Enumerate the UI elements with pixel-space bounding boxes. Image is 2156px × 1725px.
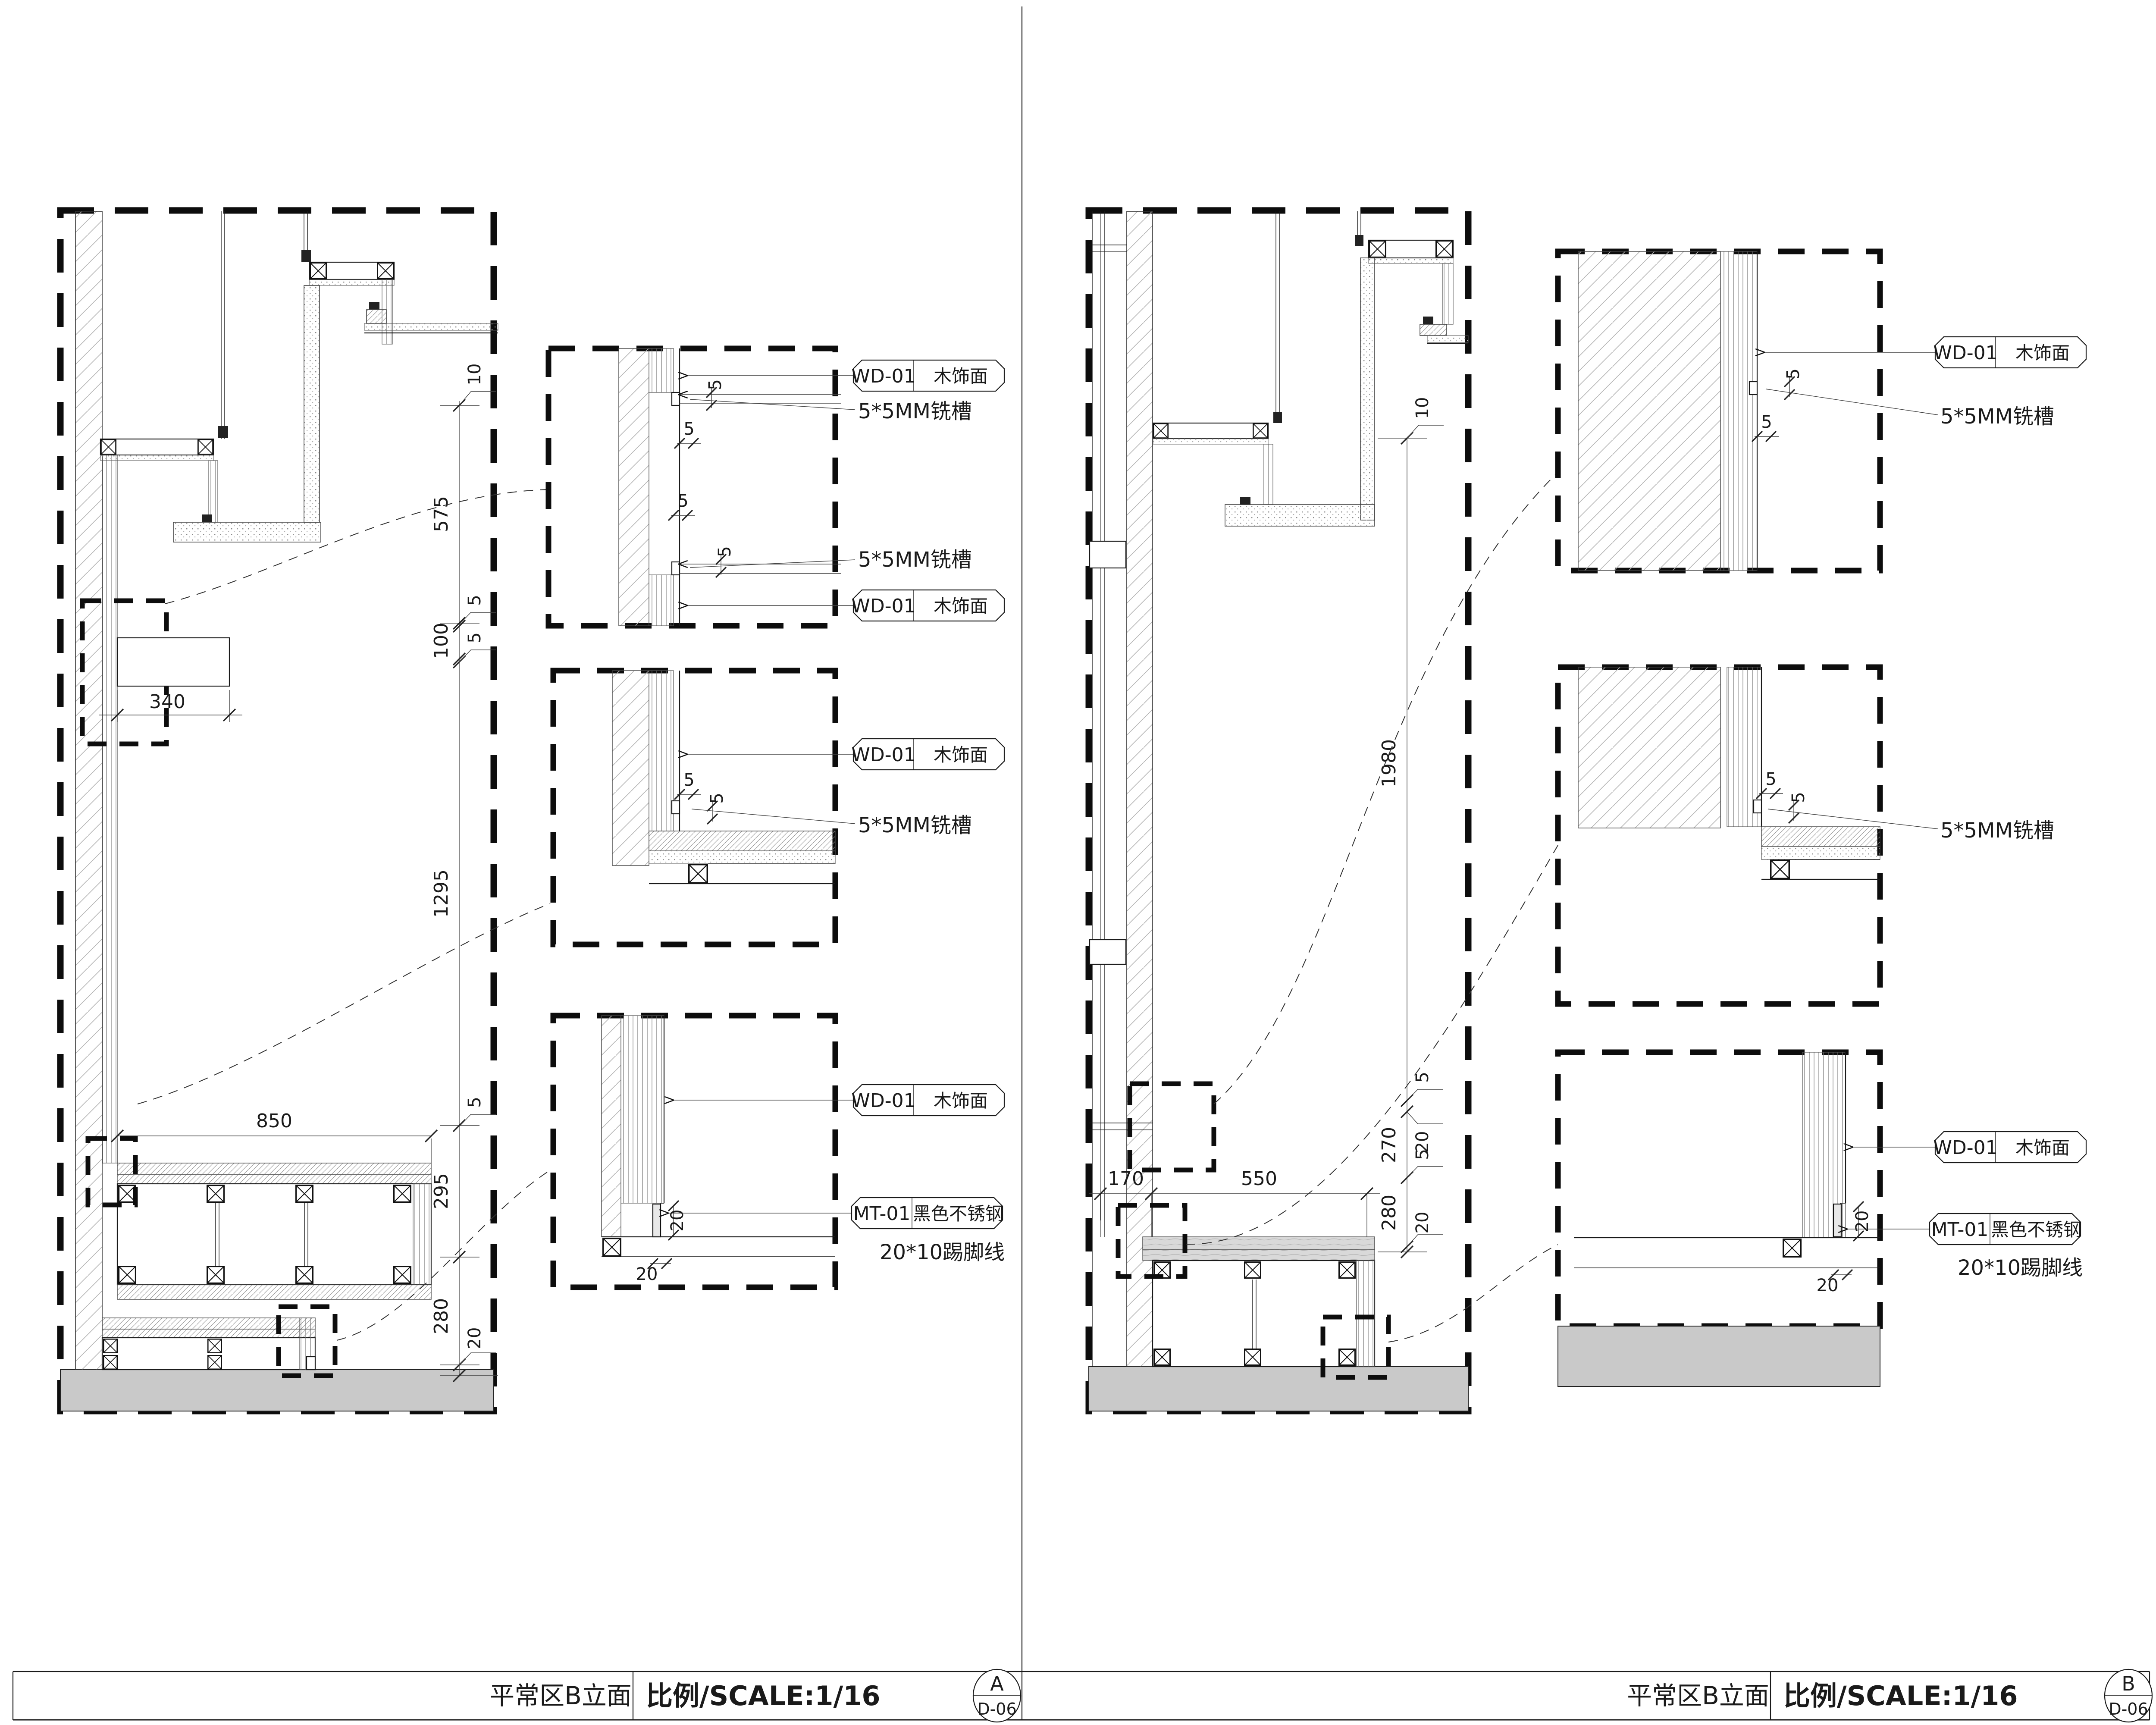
dim-label: 5 — [705, 379, 725, 390]
dim-label: 20 — [636, 1264, 658, 1284]
ceiling-slab-left — [1153, 423, 1268, 439]
svg-text:黑色不锈钢: 黑色不锈钢 — [1991, 1219, 2081, 1240]
left-bench — [117, 1163, 431, 1299]
groove-note: 5*5MM铣槽 — [1940, 405, 2054, 429]
wood-blocking — [367, 310, 386, 323]
ceiling-slab-low — [1225, 505, 1375, 526]
dim-label: 5 — [683, 770, 694, 790]
ceiling-step-board — [208, 461, 218, 522]
svg-text:WD-01: WD-01 — [851, 365, 915, 387]
scale-label: 比例/SCALE:1/16 — [1783, 1680, 2018, 1712]
material-tag-wd01: WD-01 木饰面 — [851, 1085, 1004, 1116]
hanger-clip — [202, 514, 212, 522]
panel-joint-block — [1090, 940, 1126, 964]
dim-label: 5 — [465, 632, 485, 643]
skirting-profile — [1833, 1204, 1841, 1237]
left-plinth-cabinet — [102, 1318, 315, 1370]
bench-top-section — [649, 831, 835, 851]
panel-joint-block — [1090, 541, 1126, 568]
material-tag-wd01: WD-01 木饰面 — [1933, 1132, 2086, 1163]
bench-frame — [117, 1184, 431, 1285]
dim-label: 20 — [1817, 1276, 1839, 1295]
ceiling-step-board — [1360, 258, 1375, 520]
bench-top-board — [117, 1174, 431, 1184]
right-floor-slab — [1089, 1367, 1468, 1411]
ref-sheet: D-06 — [977, 1700, 1016, 1719]
dim-label: 5 — [683, 419, 694, 439]
milling-groove — [1754, 800, 1761, 813]
ceiling-step-board — [1442, 263, 1453, 324]
dim-label: 20 — [465, 1327, 485, 1349]
milling-groove — [672, 392, 680, 405]
groove-note: 5*5MM铣槽 — [858, 399, 972, 423]
skirting-recess — [307, 1357, 315, 1370]
dim-label: 100 — [430, 623, 452, 659]
bench-top-board — [117, 1163, 431, 1174]
milling-groove — [672, 562, 680, 575]
groove-note: 5*5MM铣槽 — [858, 548, 972, 572]
cad-sheet: 340 850 — [0, 0, 2156, 1725]
material-tag-wd01: WD-01 木饰面 — [851, 590, 1004, 621]
skirting-note: 20*10踢脚线 — [880, 1240, 1005, 1264]
svg-text:WD-01: WD-01 — [851, 1090, 915, 1112]
framing-block — [198, 439, 213, 454]
scale-label: 比例/SCALE:1/16 — [646, 1680, 881, 1712]
milling-groove — [672, 801, 680, 814]
dim-label: 550 — [1241, 1168, 1277, 1190]
material-tag-wd01: WD-01 木饰面 — [851, 739, 1004, 770]
dim-label: 5 — [715, 546, 735, 557]
ceiling-step-board — [304, 285, 320, 522]
dim-label: 340 — [149, 691, 185, 713]
svg-text:木饰面: 木饰面 — [934, 366, 988, 387]
dim-label: 5 — [465, 595, 485, 605]
dim-label: 5 — [707, 793, 727, 803]
material-tag-wd01: WD-01 木饰面 — [1933, 337, 2086, 368]
bench-side-board — [1357, 1261, 1375, 1367]
svg-text:MT-01: MT-01 — [1931, 1219, 1989, 1241]
dim-label: 5 — [1789, 792, 1808, 803]
svg-text:木饰面: 木饰面 — [934, 744, 988, 765]
groove-note: 5*5MM铣槽 — [1940, 819, 2054, 843]
dim-label: 5 — [1413, 1149, 1432, 1160]
dim-label: 850 — [256, 1110, 292, 1132]
framing-block — [378, 263, 394, 279]
material-tag-wd01: WD-01 木饰面 — [851, 360, 1004, 391]
svg-text:MT-01: MT-01 — [853, 1203, 911, 1225]
hanger-clip — [301, 250, 311, 262]
bench-top-board — [1143, 1250, 1375, 1261]
groove-note: 5*5MM铣槽 — [858, 813, 972, 837]
skirting-profile — [653, 1204, 661, 1237]
ref-letter: A — [990, 1672, 1004, 1695]
svg-text:WD-01: WD-01 — [1933, 1137, 1997, 1159]
left-wood-panel-strip — [103, 455, 117, 1163]
left-floor-slab — [60, 1370, 494, 1411]
milling-groove — [1749, 382, 1757, 395]
plinth-top-board — [102, 1329, 315, 1338]
hanger-clip — [218, 426, 228, 438]
dim-label: 280 — [430, 1298, 452, 1334]
dim-label: 20 — [667, 1210, 687, 1232]
ceiling-lining — [100, 455, 213, 461]
dim-label: 170 — [1108, 1168, 1144, 1190]
framing-block — [310, 263, 326, 279]
svg-text:WD-01: WD-01 — [851, 744, 915, 766]
skirting-note: 20*10踢脚线 — [1958, 1256, 2083, 1280]
dim-label: 5 — [1783, 368, 1803, 379]
ceiling-step-board — [1264, 444, 1273, 505]
elevation-drawing-svg: 340 850 — [0, 0, 2156, 1725]
right-wall-hatch — [1127, 211, 1153, 1367]
view-title: 平常区B立面 — [1627, 1681, 1769, 1710]
bench-top-section — [1761, 827, 1880, 847]
ceiling-slab-low — [173, 522, 321, 542]
plinth-top-board — [102, 1318, 315, 1329]
framing-block — [101, 439, 116, 454]
detail-reference-bubble: B D-06 — [2105, 1669, 2152, 1722]
svg-text:木饰面: 木饰面 — [2015, 1137, 2070, 1158]
ref-letter: B — [2122, 1672, 2135, 1695]
dim-label: 5 — [465, 1097, 485, 1107]
material-tag-mt01: MT-01 黑色不锈钢 — [1930, 1214, 2081, 1245]
dim-label: 270 — [1378, 1127, 1400, 1163]
dim-label: 5 — [677, 491, 688, 511]
ceiling-slab-left — [100, 439, 213, 455]
bench-bottom-board — [117, 1285, 431, 1299]
svg-text:WD-01: WD-01 — [1933, 342, 1997, 364]
svg-text:木饰面: 木饰面 — [2015, 342, 2070, 364]
svg-text:黑色不锈钢: 黑色不锈钢 — [913, 1203, 1003, 1224]
detail-floor-slab — [1558, 1326, 1880, 1386]
bench-side-board — [413, 1184, 431, 1285]
dim-label: 1295 — [430, 869, 452, 918]
ceiling-lining — [310, 279, 394, 285]
hanger-clip — [1423, 317, 1433, 324]
hanger-clip — [1355, 235, 1363, 246]
wood-blocking — [1420, 324, 1447, 336]
ceiling-slab-right — [364, 323, 498, 330]
hanger-clip — [1273, 412, 1282, 423]
bench-top-board — [1143, 1237, 1375, 1250]
svg-text:木饰面: 木饰面 — [934, 1090, 988, 1111]
wall-shelf — [117, 638, 229, 686]
material-tag-mt01: MT-01 黑色不锈钢 — [852, 1198, 1003, 1229]
dim-label: 295 — [430, 1173, 452, 1209]
dim-label: 20 — [1413, 1212, 1432, 1234]
dim-label: 280 — [1378, 1195, 1400, 1231]
dim-label: 1980 — [1378, 739, 1400, 787]
right-bench — [1143, 1237, 1375, 1367]
dim-label: 5 — [1761, 412, 1772, 432]
ref-sheet: D-06 — [2109, 1700, 2148, 1719]
view-title: 平常区B立面 — [489, 1681, 632, 1710]
dim-label: 10 — [1413, 397, 1432, 419]
hanger-clip — [369, 302, 379, 310]
sheet-background — [0, 0, 2156, 1725]
svg-text:WD-01: WD-01 — [851, 595, 915, 617]
hanger-clip — [1240, 497, 1250, 505]
dim-label: 575 — [430, 496, 452, 532]
dim-label: 5 — [1765, 769, 1776, 789]
svg-text:木饰面: 木饰面 — [934, 596, 988, 617]
detail-reference-bubble: A D-06 — [973, 1669, 1021, 1722]
dim-label: 10 — [465, 364, 485, 386]
